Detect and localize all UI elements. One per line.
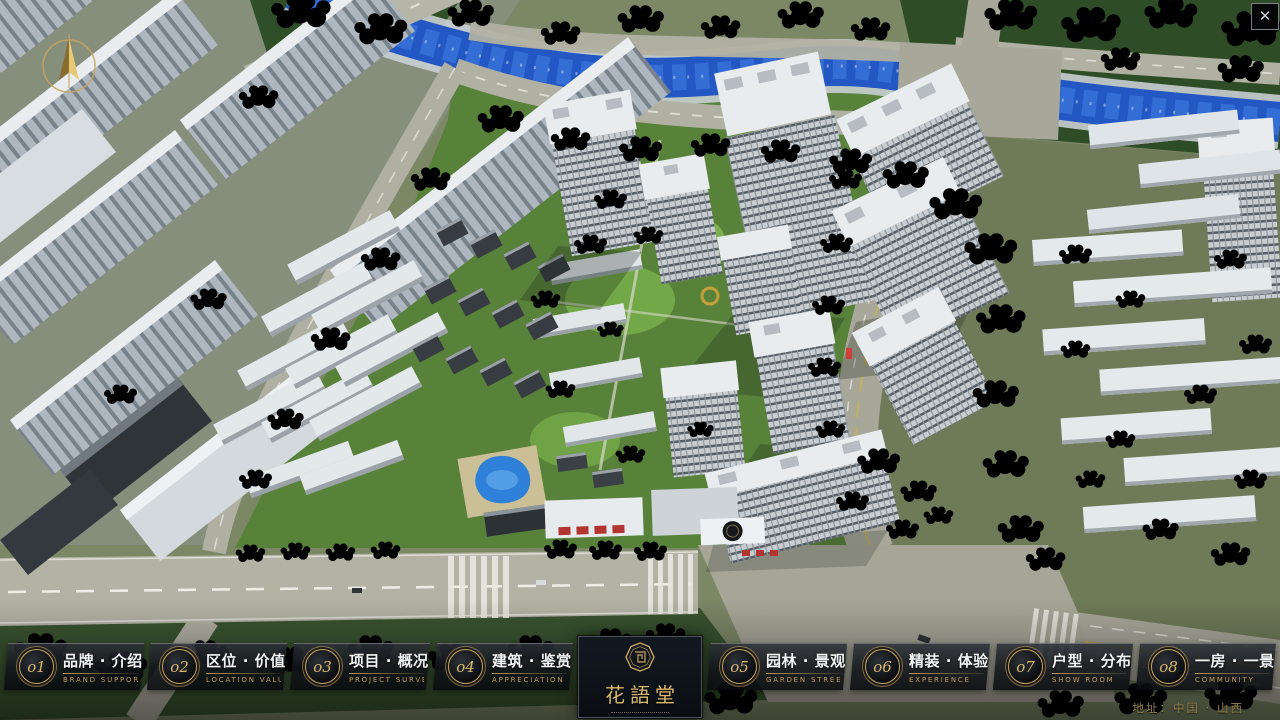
nav-item-number-badge: o2 [162, 649, 197, 684]
nav-item-project[interactable]: o3 项目 · 概况 PROJECT SURVEY [292, 643, 428, 690]
logo-divider [611, 712, 669, 713]
nav-item-floorplan[interactable]: o7 户型 · 分布 SHOW ROOM [995, 643, 1131, 690]
nav-item-divider [349, 673, 424, 674]
nav-item-label-cn: 项目 · 概况 [349, 650, 424, 671]
nav-item-label-cn: 一房 · 一景 [1195, 650, 1270, 671]
nav-item-divider [206, 673, 281, 674]
nav-item-label-cn: 品牌 · 介绍 [63, 650, 138, 671]
logo-seal-icon [625, 642, 655, 676]
project-address: 地址：中国 · 山西 [1133, 700, 1244, 716]
close-button[interactable]: ✕ [1251, 3, 1279, 30]
nav-item-label-en: PROJECT SURVEY [349, 676, 424, 684]
nav-item-number-badge: o6 [865, 649, 900, 684]
nav-item-divider [63, 673, 138, 674]
nav-item-label-en: SHOW ROOM [1052, 676, 1127, 684]
nav-item-divider [909, 673, 984, 674]
presentation-window: ✕ o1 品牌 · 介绍 BRAND SUPPORT o2 区位 · 价值 LO… [0, 0, 1280, 720]
nav-item-label-cn: 精装 · 体验 [909, 650, 984, 671]
nav-item-number-badge: o8 [1151, 649, 1186, 684]
nav-item-label-en: APPRECIATION [492, 676, 567, 684]
nav-item-number-badge: o4 [448, 649, 483, 684]
nav-item-label-en: EXPERIENCE [909, 676, 984, 684]
nav-item-brand[interactable]: o1 品牌 · 介绍 BRAND SUPPORT [6, 643, 142, 690]
nav-item-label-en: COMMUNITY [1195, 676, 1270, 684]
bottom-navigation: o1 品牌 · 介绍 BRAND SUPPORT o2 区位 · 价值 LOCA… [0, 636, 1280, 720]
nav-item-number-badge: o5 [722, 649, 757, 684]
nav-item-number-badge: o3 [305, 649, 340, 684]
masterplan-render [0, 0, 1280, 720]
nav-item-divider [766, 673, 841, 674]
nav-item-number-badge: o7 [1008, 649, 1043, 684]
logo-panel[interactable]: 花語堂 [578, 636, 702, 718]
nav-item-label-en: BRAND SUPPORT [63, 676, 138, 684]
nav-item-divider [1052, 673, 1127, 674]
nav-item-interior[interactable]: o6 精装 · 体验 EXPERIENCE [852, 643, 988, 690]
close-icon: ✕ [1259, 9, 1272, 24]
nav-item-label-cn: 园林 · 景观 [766, 650, 841, 671]
nav-item-label-en: GARDEN STREET [766, 676, 841, 684]
nav-item-label-cn: 建筑 · 鉴赏 [492, 650, 567, 671]
nav-item-number-badge: o1 [19, 649, 54, 684]
nav-item-location[interactable]: o2 区位 · 价值 LOCATION VALUE [149, 643, 285, 690]
nav-item-label-en: LOCATION VALUE [206, 676, 281, 684]
nav-item-garden[interactable]: o5 园林 · 景观 GARDEN STREET [709, 643, 845, 690]
nav-item-divider [492, 673, 567, 674]
project-logo-title: 花語堂 [600, 679, 680, 708]
nav-item-divider [1195, 673, 1270, 674]
nav-item-views[interactable]: o8 一房 · 一景 COMMUNITY [1138, 643, 1274, 690]
nav-item-label-cn: 户型 · 分布 [1052, 650, 1127, 671]
nav-item-architecture[interactable]: o4 建筑 · 鉴赏 APPRECIATION [435, 643, 571, 690]
nav-item-label-cn: 区位 · 价值 [206, 650, 281, 671]
